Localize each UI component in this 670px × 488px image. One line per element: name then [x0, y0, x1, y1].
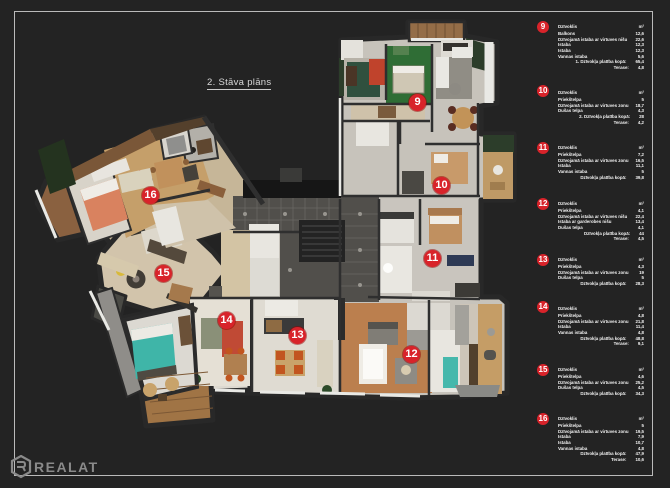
- svg-text:REALAT: REALAT: [34, 459, 99, 475]
